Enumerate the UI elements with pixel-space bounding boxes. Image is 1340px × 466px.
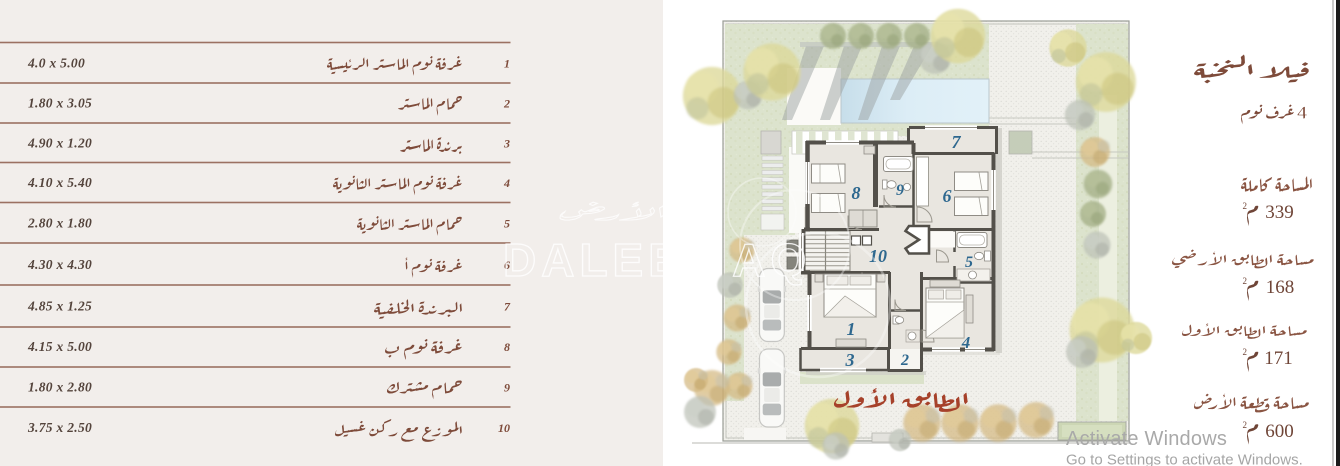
svg-text:2.80 x 1.80: 2.80 x 1.80 — [27, 216, 92, 231]
svg-text:2: 2 — [1243, 420, 1248, 430]
svg-text:5: 5 — [504, 217, 510, 231]
svg-text:4.90 x 1.20: 4.90 x 1.20 — [27, 135, 92, 150]
svg-text:339: 339 — [1265, 202, 1294, 223]
svg-text:4.85 x 1.25: 4.85 x 1.25 — [27, 299, 92, 314]
svg-text:9: 9 — [896, 182, 904, 199]
svg-text:7: 7 — [952, 132, 962, 152]
svg-text:2: 2 — [900, 352, 909, 369]
svg-text:Go to Settings to activate Win: Go to Settings to activate Windows. — [1066, 452, 1303, 466]
svg-text:1.80 x 2.80: 1.80 x 2.80 — [28, 380, 92, 395]
svg-text:600: 600 — [1265, 421, 1294, 442]
svg-text:1: 1 — [847, 319, 856, 339]
svg-text:1: 1 — [504, 57, 510, 71]
svg-text:2: 2 — [1243, 347, 1248, 357]
svg-text:3: 3 — [503, 136, 510, 150]
svg-text:4.10 x 5.40: 4.10 x 5.40 — [27, 175, 92, 190]
svg-text:Activate Windows: Activate Windows — [1066, 428, 1227, 450]
svg-text:4.15 x 5.00: 4.15 x 5.00 — [27, 339, 92, 354]
svg-text:2: 2 — [1243, 276, 1248, 286]
svg-text:8: 8 — [852, 183, 861, 203]
svg-text:2: 2 — [503, 97, 510, 111]
svg-text:168: 168 — [1266, 277, 1295, 298]
svg-text:3.75 x 2.50: 3.75 x 2.50 — [27, 420, 92, 435]
svg-text:10: 10 — [498, 421, 510, 435]
svg-text:5: 5 — [965, 254, 973, 271]
svg-text:1.80 x 3.05: 1.80 x 3.05 — [28, 96, 92, 111]
svg-text:171: 171 — [1264, 348, 1293, 369]
svg-text:4: 4 — [503, 176, 510, 190]
svg-text:DALEEL AQ: DALEEL AQ — [503, 234, 811, 286]
svg-text:4.30 x 4.30: 4.30 x 4.30 — [27, 257, 92, 272]
svg-text:4.0 x 5.00: 4.0 x 5.00 — [27, 56, 85, 71]
svg-text:7: 7 — [504, 300, 511, 314]
svg-text:9: 9 — [504, 381, 510, 395]
svg-text:4: 4 — [961, 333, 971, 352]
svg-text:8: 8 — [504, 340, 510, 354]
svg-text:6: 6 — [943, 186, 952, 206]
svg-text:2: 2 — [1243, 201, 1248, 211]
